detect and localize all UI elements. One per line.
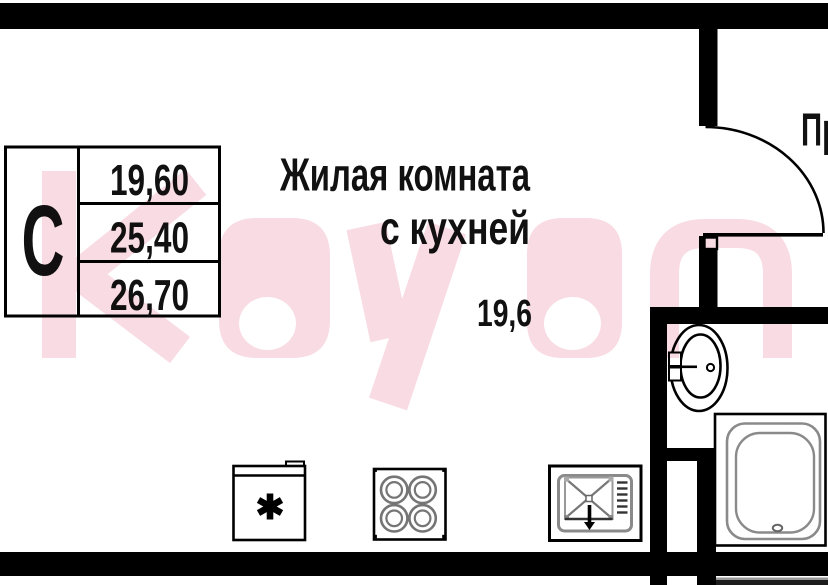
svg-text:Пр: Пр — [801, 104, 828, 156]
svg-text:Жилая комната: Жилая комната — [279, 149, 530, 201]
svg-text:19,6: 19,6 — [477, 293, 532, 335]
